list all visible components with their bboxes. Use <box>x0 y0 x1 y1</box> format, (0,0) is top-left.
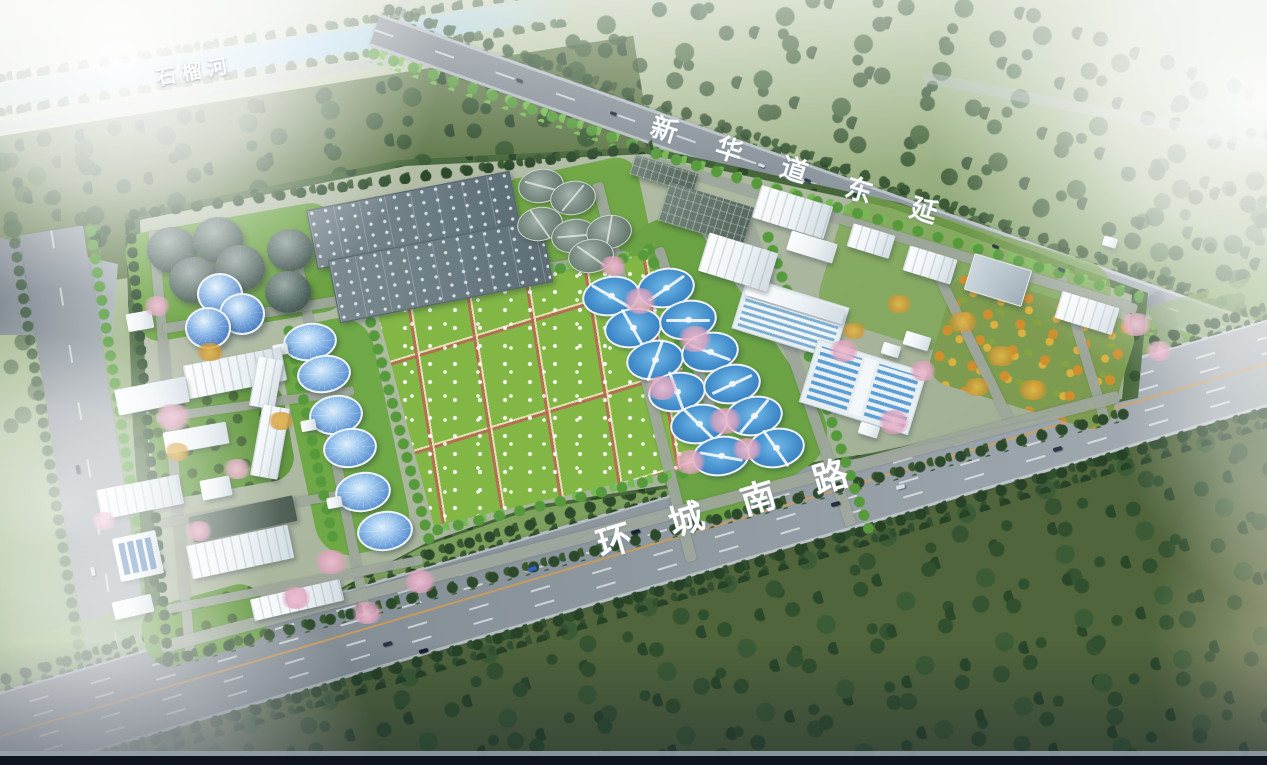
autumn-tree <box>841 323 867 339</box>
digester-dome <box>267 229 313 271</box>
blossom-trees <box>730 438 764 460</box>
blossom-trees <box>1144 341 1174 361</box>
blossom-trees <box>676 326 714 352</box>
blossom-trees <box>622 288 658 314</box>
autumn-tree <box>985 346 1017 366</box>
blossom-trees <box>706 408 744 434</box>
autumn-tree <box>163 443 191 461</box>
blossom-trees <box>221 459 253 479</box>
blossom-trees <box>827 340 861 362</box>
solar-panels <box>118 537 158 575</box>
autumn-tree <box>885 295 913 313</box>
building-solar-equipment <box>112 530 164 582</box>
autumn-tree <box>963 378 991 396</box>
blossom-trees <box>184 521 214 541</box>
blossom-trees <box>908 361 938 381</box>
bottom-frame-dark-strip <box>0 756 1267 765</box>
autumn-tree <box>195 343 225 361</box>
blossom-trees <box>90 512 118 530</box>
blossom-trees <box>279 587 313 609</box>
blossom-trees <box>644 376 680 400</box>
autumn-tree <box>947 312 979 332</box>
blossom-trees <box>402 570 438 593</box>
blossom-trees <box>350 602 384 624</box>
aerial-rendering-canvas: 石榴河 新华道东延 环城南路 <box>0 0 1267 765</box>
digester-dome <box>265 271 311 313</box>
scraper-arm <box>529 210 550 239</box>
blossom-trees <box>598 256 628 276</box>
blossom-trees <box>152 404 194 430</box>
blossom-trees <box>876 410 912 434</box>
scraper-arm <box>561 184 584 211</box>
clarifier-hub <box>684 316 692 323</box>
blossom-trees <box>672 450 708 474</box>
blossom-trees <box>1118 313 1154 336</box>
autumn-tree <box>1017 380 1049 400</box>
blossom-trees <box>142 296 172 316</box>
clarifier-hub <box>717 452 725 459</box>
autumn-tree <box>267 412 295 430</box>
blossom-trees <box>312 550 350 574</box>
